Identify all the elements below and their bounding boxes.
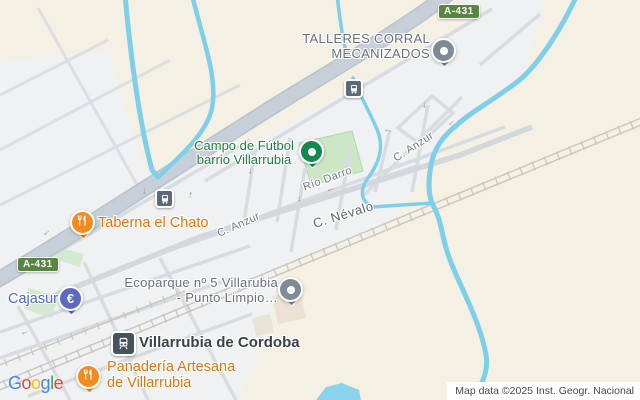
one-way-arrow-icon: →	[419, 99, 431, 111]
one-way-arrow-icon: →	[184, 189, 196, 201]
poi-pin-talleres[interactable]	[431, 38, 456, 72]
train-station-icon[interactable]	[111, 331, 136, 356]
poi-label-campo-futbol[interactable]: Campo de Fútbol barrio Villarrubia	[185, 139, 303, 167]
one-way-arrow-icon: →	[139, 185, 151, 197]
poi-label-panaderia[interactable]: Panadería Artesana de Villarrubia	[107, 359, 235, 391]
poi-label-cajasur[interactable]: Cajasur	[8, 291, 58, 307]
one-way-arrow-icon: →	[294, 193, 306, 205]
pin-dot	[440, 47, 448, 55]
poi-pin-ecoparque[interactable]	[278, 277, 303, 311]
euro-icon: €	[67, 291, 74, 306]
pin-dot	[287, 286, 295, 294]
poi-pin-cajasur[interactable]: €	[58, 286, 83, 320]
pond	[316, 383, 361, 400]
map-attribution: Map data ©2025 Inst. Geogr. Nacional	[447, 382, 640, 400]
restaurant-icon	[76, 214, 89, 232]
google-logo[interactable]: Google	[8, 373, 63, 394]
bus-stop-icon[interactable]	[155, 189, 174, 208]
map-viewport[interactable]: → → → → → → → → → → Río Darro C. Anzur C…	[0, 0, 640, 400]
poi-pin-campo-futbol[interactable]	[299, 139, 324, 173]
road-badge-a431-top: A-431	[438, 4, 480, 19]
poi-label-taberna[interactable]: Taberna el Chato	[98, 215, 208, 231]
one-way-arrow-icon: →	[382, 125, 394, 137]
poi-label-station[interactable]: Villarrubia de Cordoba	[139, 334, 300, 351]
pin-dot	[308, 148, 316, 156]
poi-pin-panaderia[interactable]	[76, 364, 101, 398]
poi-pin-taberna[interactable]	[70, 210, 95, 244]
road-badge-a431-left: A-431	[17, 257, 59, 272]
restaurant-icon	[82, 368, 95, 386]
poi-label-talleres[interactable]: TALLERES CORRAL MECANIZADOS	[302, 31, 430, 61]
bus-stop-icon[interactable]	[344, 79, 363, 98]
poi-label-ecoparque[interactable]: Ecoparque nº 5 Villarubia - Punto Limpio…	[124, 275, 278, 305]
